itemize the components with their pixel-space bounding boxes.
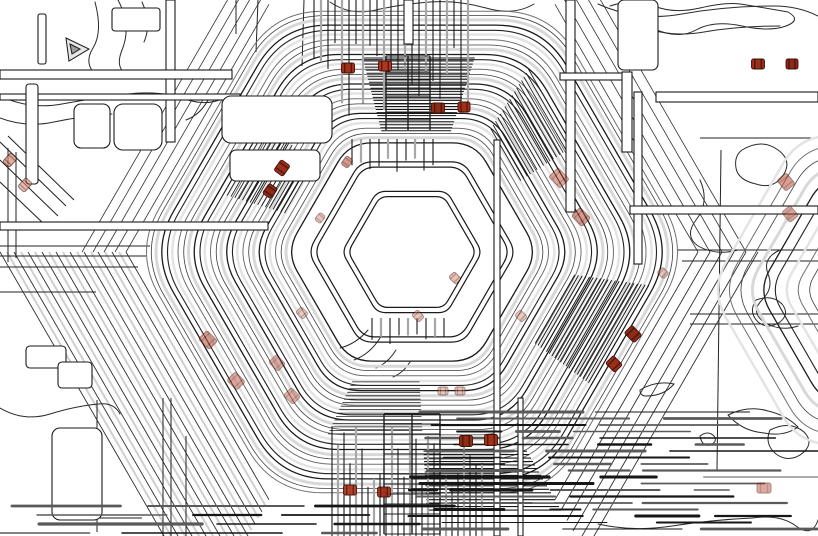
red-marker <box>341 156 353 169</box>
red-marker <box>752 59 765 69</box>
red-marker <box>432 103 445 113</box>
red-marker <box>460 436 473 447</box>
red-marker <box>485 435 498 446</box>
red-marker <box>458 102 470 112</box>
red-marker <box>786 59 798 69</box>
red-marker <box>342 63 355 73</box>
red-marker <box>379 61 392 71</box>
red-marker <box>344 485 357 495</box>
hexagonal-tunnel-illustration <box>0 0 818 536</box>
red-marker <box>378 487 391 497</box>
triangle-glyph <box>66 38 89 61</box>
red-marker <box>449 272 462 285</box>
red-marker <box>227 372 245 390</box>
line-art-canvas <box>0 0 818 536</box>
red-marker <box>757 483 771 493</box>
red-marker <box>455 387 465 395</box>
red-marker <box>438 387 448 395</box>
red-marker <box>314 212 325 223</box>
red-marker <box>412 310 425 323</box>
